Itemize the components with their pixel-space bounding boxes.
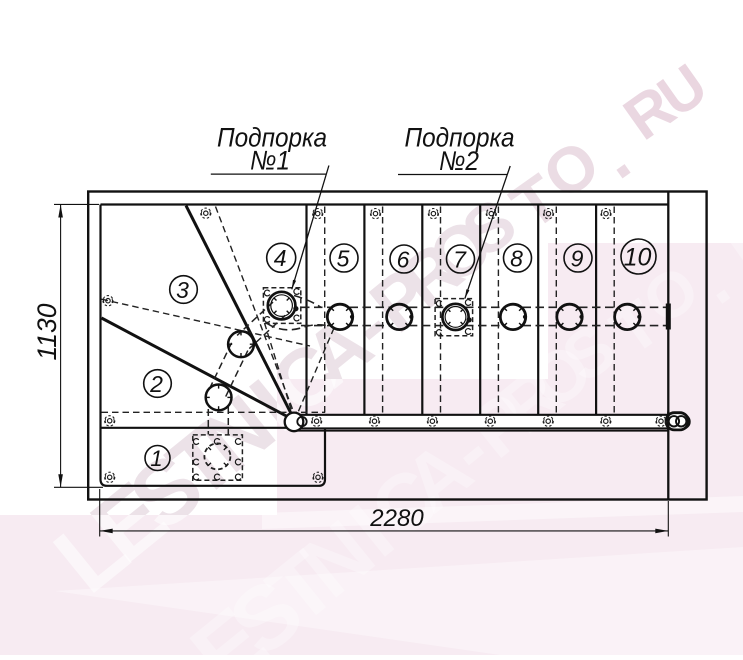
svg-text:№1: №1 [250,146,290,176]
svg-text:3: 3 [176,277,189,303]
svg-text:2: 2 [149,371,163,397]
svg-text:1: 1 [150,446,162,471]
svg-text:5: 5 [337,245,350,271]
svg-text:4: 4 [274,245,287,271]
svg-text:7: 7 [453,246,467,272]
svg-text:10: 10 [624,244,652,272]
svg-text:8: 8 [510,245,523,271]
svg-text:2280: 2280 [369,505,424,532]
svg-text:1130: 1130 [32,303,62,360]
svg-text:6: 6 [397,246,410,272]
svg-text:№2: №2 [439,146,479,176]
svg-text:9: 9 [571,245,584,271]
